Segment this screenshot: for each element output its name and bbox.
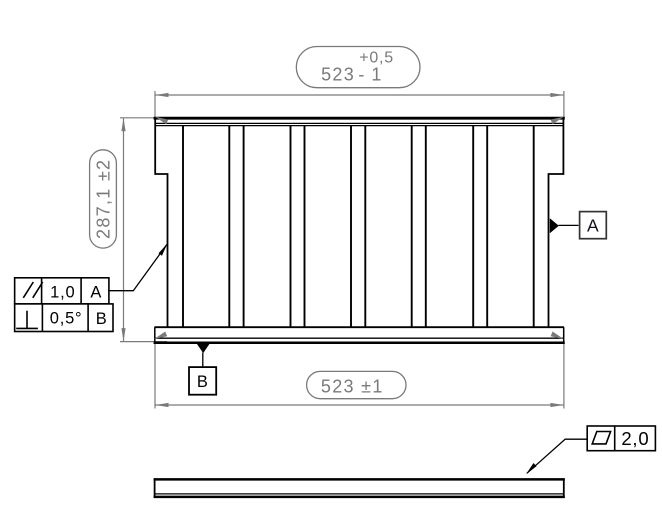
svg-text:A: A <box>90 283 101 301</box>
svg-text:B: B <box>197 373 208 391</box>
svg-text:- 1: - 1 <box>358 64 382 84</box>
svg-text:2,0: 2,0 <box>621 428 649 449</box>
svg-text:B: B <box>96 310 107 328</box>
svg-text:0,5°: 0,5° <box>50 310 83 328</box>
svg-text:A: A <box>587 216 599 236</box>
svg-text:287,1 ±2: 287,1 ±2 <box>94 159 114 239</box>
svg-text:523 ±1: 523 ±1 <box>321 376 384 396</box>
svg-text:1,0: 1,0 <box>50 284 75 302</box>
svg-text:523: 523 <box>321 64 355 84</box>
